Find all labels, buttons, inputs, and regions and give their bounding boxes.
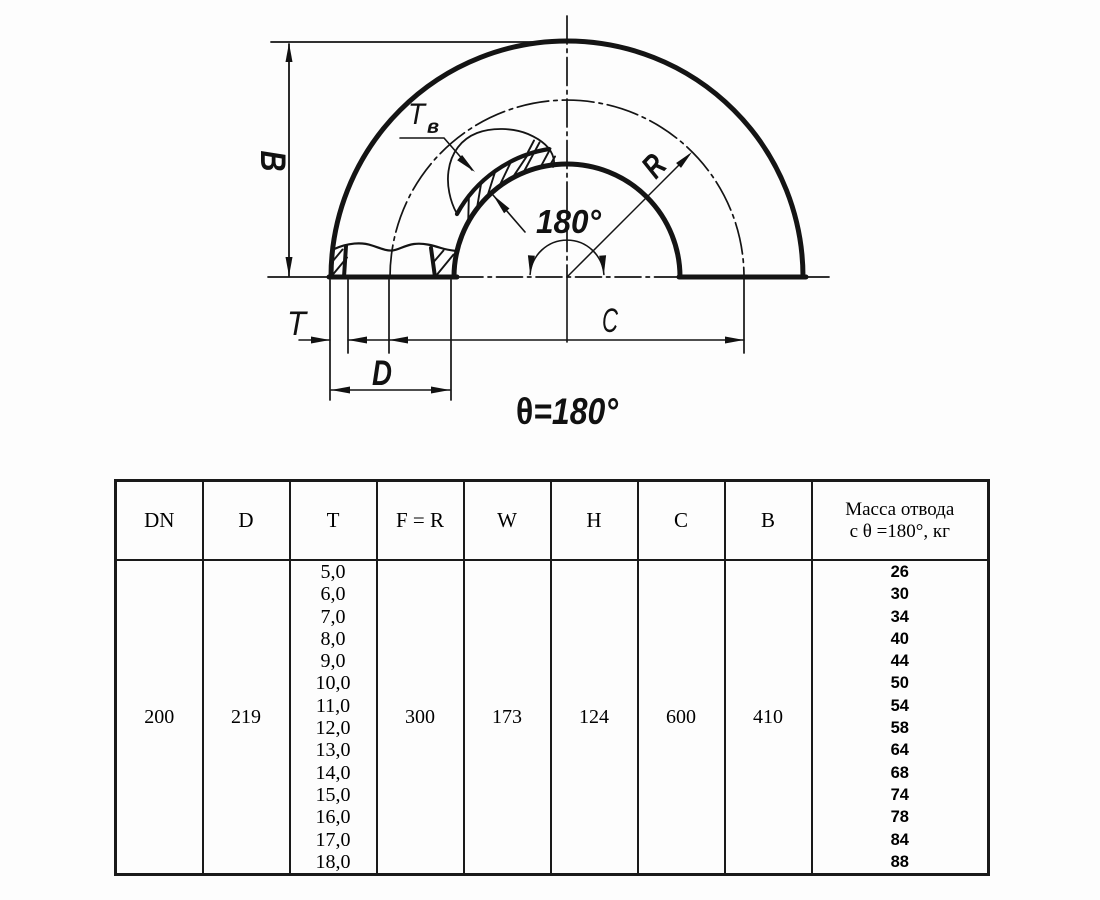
svg-text:θ=180°: θ=180° xyxy=(516,391,618,432)
svg-text:R: R xyxy=(634,146,673,184)
svg-text:180°: 180° xyxy=(536,203,602,240)
svg-text:C: C xyxy=(602,302,618,340)
svg-text:T: T xyxy=(287,305,308,343)
svg-text:в: в xyxy=(427,117,439,138)
svg-text:D: D xyxy=(372,354,392,393)
svg-text:T: T xyxy=(408,98,427,131)
svg-text:B: B xyxy=(253,151,292,172)
